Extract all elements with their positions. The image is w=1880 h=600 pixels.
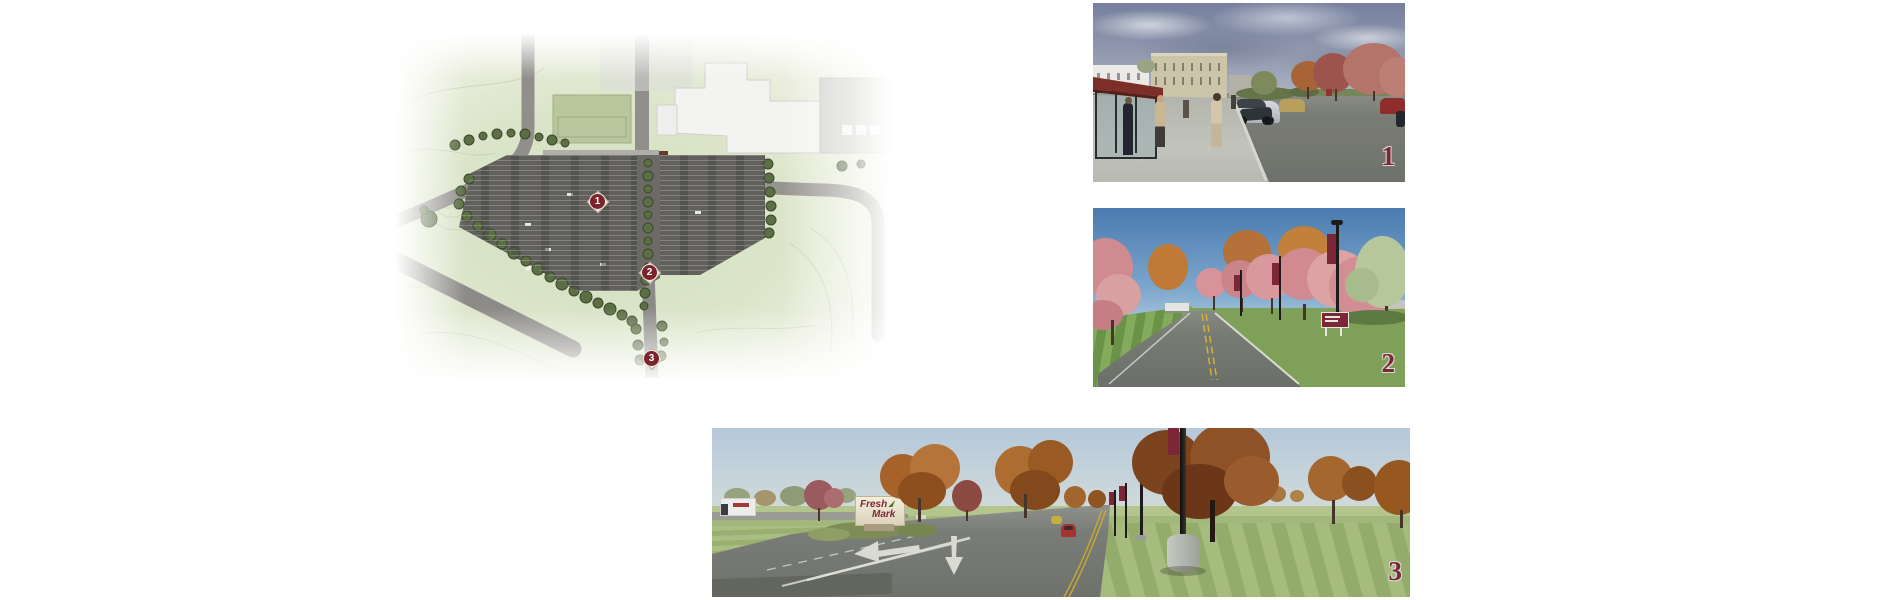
lawn-panel: [553, 95, 631, 143]
banner-pole: [1279, 256, 1281, 320]
marker-circle-icon: 2: [641, 264, 658, 281]
orange-tree-icon: [898, 472, 946, 510]
marker-1-label: 1: [595, 196, 601, 207]
person: [1123, 103, 1133, 155]
tan-building-windows-upper: [1155, 63, 1223, 71]
marker-3-label: 3: [649, 353, 655, 364]
marker-circle-icon: 3: [643, 350, 660, 367]
person: [1211, 100, 1222, 147]
autumn-tree-icon: [1224, 456, 1279, 506]
distant-tree-icon: [1137, 59, 1155, 73]
tree-trunk: [1213, 296, 1215, 310]
sign-text-line: [1325, 316, 1340, 318]
car-window: [1064, 526, 1073, 530]
street-banner: [1234, 275, 1240, 291]
distant-sign: [1326, 89, 1332, 96]
person-head: [1157, 95, 1164, 102]
tree-trunk: [1111, 320, 1114, 345]
fresh-mark-sign: Fresh Mark: [855, 496, 905, 526]
tree-trunk: [818, 508, 820, 521]
tree-trunk: [1332, 500, 1335, 524]
tree-trunk: [1307, 87, 1309, 99]
tree-trunk: [1024, 494, 1027, 518]
orange-tree-icon: [1342, 466, 1377, 501]
lamp-pole: [1140, 478, 1143, 538]
person: [1231, 95, 1236, 109]
orange-tree-icon: [1064, 486, 1086, 508]
tree-trunk: [1271, 298, 1273, 314]
tree-trunk: [1400, 510, 1403, 528]
green-tree-icon: [1251, 71, 1277, 95]
render-3-number: 3: [1389, 558, 1403, 585]
render-1-number: 1: [1382, 143, 1396, 170]
render-2-number: 2: [1382, 350, 1396, 377]
tree-trunk: [1373, 91, 1375, 101]
orange-tree-icon: [1010, 470, 1060, 510]
wayfinding-sign: [1321, 312, 1347, 336]
motorcycle-wheel: [1262, 116, 1271, 125]
person-head: [1213, 93, 1221, 101]
tree-trunk: [1335, 89, 1337, 101]
street-banner: [1272, 263, 1279, 285]
plan-marker-3: 3: [640, 347, 662, 369]
person: [1183, 100, 1189, 118]
orange-tree-icon: [1088, 490, 1106, 508]
lamp-head-icon: [1331, 220, 1343, 225]
dark-bike: [1396, 111, 1405, 127]
street-banner: [1168, 428, 1179, 455]
presentation-board: 1 2 3: [0, 0, 1880, 600]
foreground-pole: [1180, 428, 1186, 540]
tree-trunk: [1303, 304, 1306, 320]
render-2-entry-drive-view: 2: [1093, 208, 1405, 387]
lamp-pole-base: [1136, 535, 1146, 540]
street-banner: [1119, 486, 1125, 501]
street-banner: [1327, 234, 1336, 264]
orange-tree-icon: [1290, 490, 1304, 502]
yellow-car: [1051, 516, 1062, 524]
render-3-road-approach-view: Fresh Mark: [712, 428, 1410, 597]
marker-circle-icon: 1: [589, 193, 606, 210]
banner-pole: [1125, 483, 1127, 538]
sign-text-line: [1325, 320, 1338, 322]
street-banner: [1109, 492, 1114, 505]
banner-pole: [1114, 490, 1116, 536]
plan-marker-1: 1: [586, 190, 608, 212]
site-plan: 1 2 3: [395, 33, 892, 378]
red-car: [1061, 524, 1076, 537]
gold-car: [1279, 99, 1305, 112]
plan-marker-2: 2: [638, 261, 660, 283]
maroon-tree-icon: [952, 480, 982, 512]
leaf-icon: [888, 500, 895, 507]
straight-arrow: [945, 536, 963, 575]
person: [1155, 101, 1165, 147]
marker-2-label: 2: [647, 267, 653, 278]
light-green-tree-icon: [1345, 268, 1379, 302]
tree-trunk: [1210, 500, 1215, 542]
person-head: [1125, 97, 1132, 104]
shrub: [808, 528, 850, 541]
tree-trunk: [966, 510, 968, 521]
tree-trunk: [918, 498, 921, 522]
sign-line-2: Mark: [872, 510, 895, 520]
orange-tree-icon: [1148, 244, 1188, 290]
pink-tree-icon: [824, 488, 844, 508]
pole-base-shadow: [1160, 566, 1206, 576]
sign-base: [864, 524, 894, 531]
render-1-bus-shelter-view: 1: [1093, 3, 1405, 182]
banner-pole: [1240, 270, 1242, 316]
